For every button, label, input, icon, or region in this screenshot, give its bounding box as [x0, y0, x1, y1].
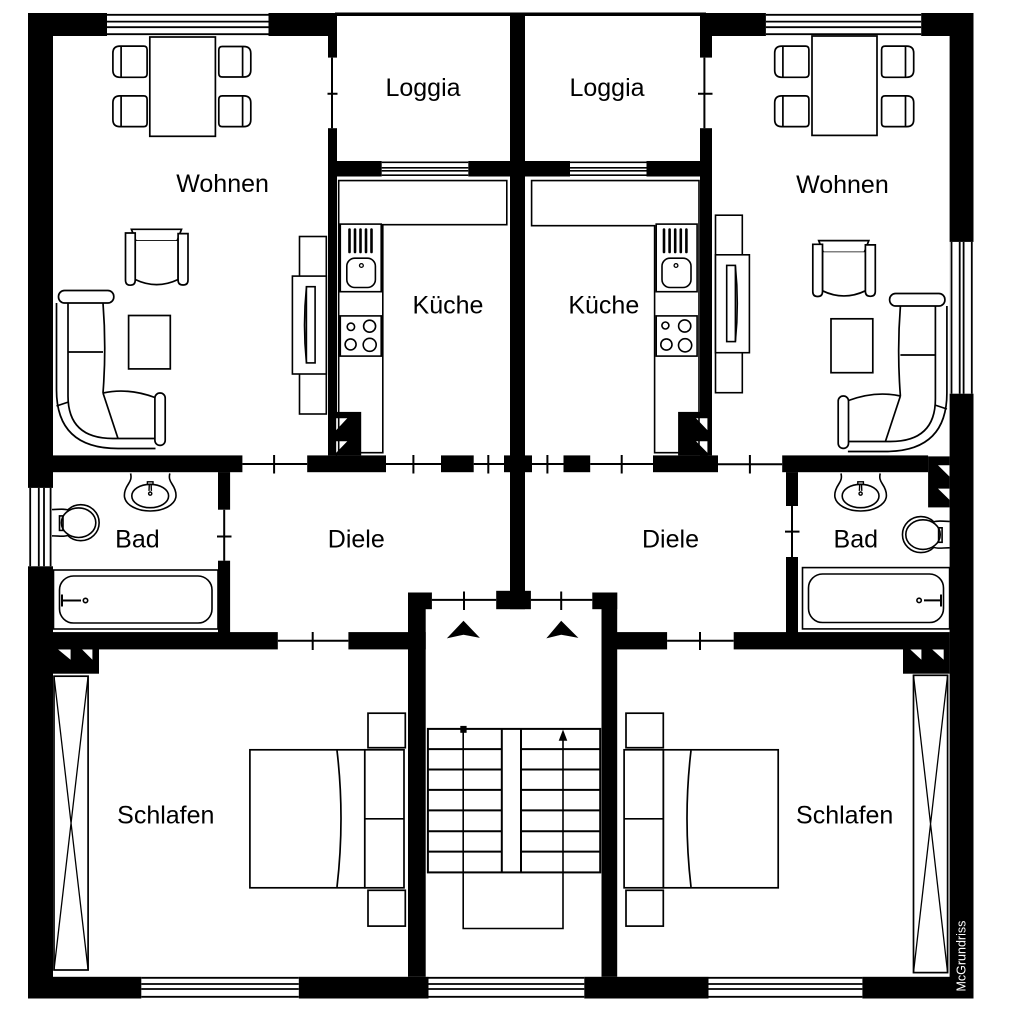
svg-text:Loggia: Loggia	[385, 74, 460, 102]
svg-text:Küche: Küche	[568, 292, 639, 320]
svg-text:McGrundriss: McGrundriss	[955, 921, 969, 992]
svg-text:Diele: Diele	[328, 526, 385, 554]
svg-text:Bad: Bad	[834, 526, 878, 554]
svg-text:Loggia: Loggia	[569, 74, 644, 102]
svg-text:Bad: Bad	[115, 526, 159, 554]
svg-text:Diele: Diele	[642, 526, 699, 554]
svg-text:Schlafen: Schlafen	[117, 802, 214, 830]
svg-text:Wohnen: Wohnen	[176, 170, 269, 198]
svg-text:Küche: Küche	[413, 292, 484, 320]
svg-text:Wohnen: Wohnen	[796, 171, 889, 199]
svg-text:Schlafen: Schlafen	[796, 802, 893, 830]
